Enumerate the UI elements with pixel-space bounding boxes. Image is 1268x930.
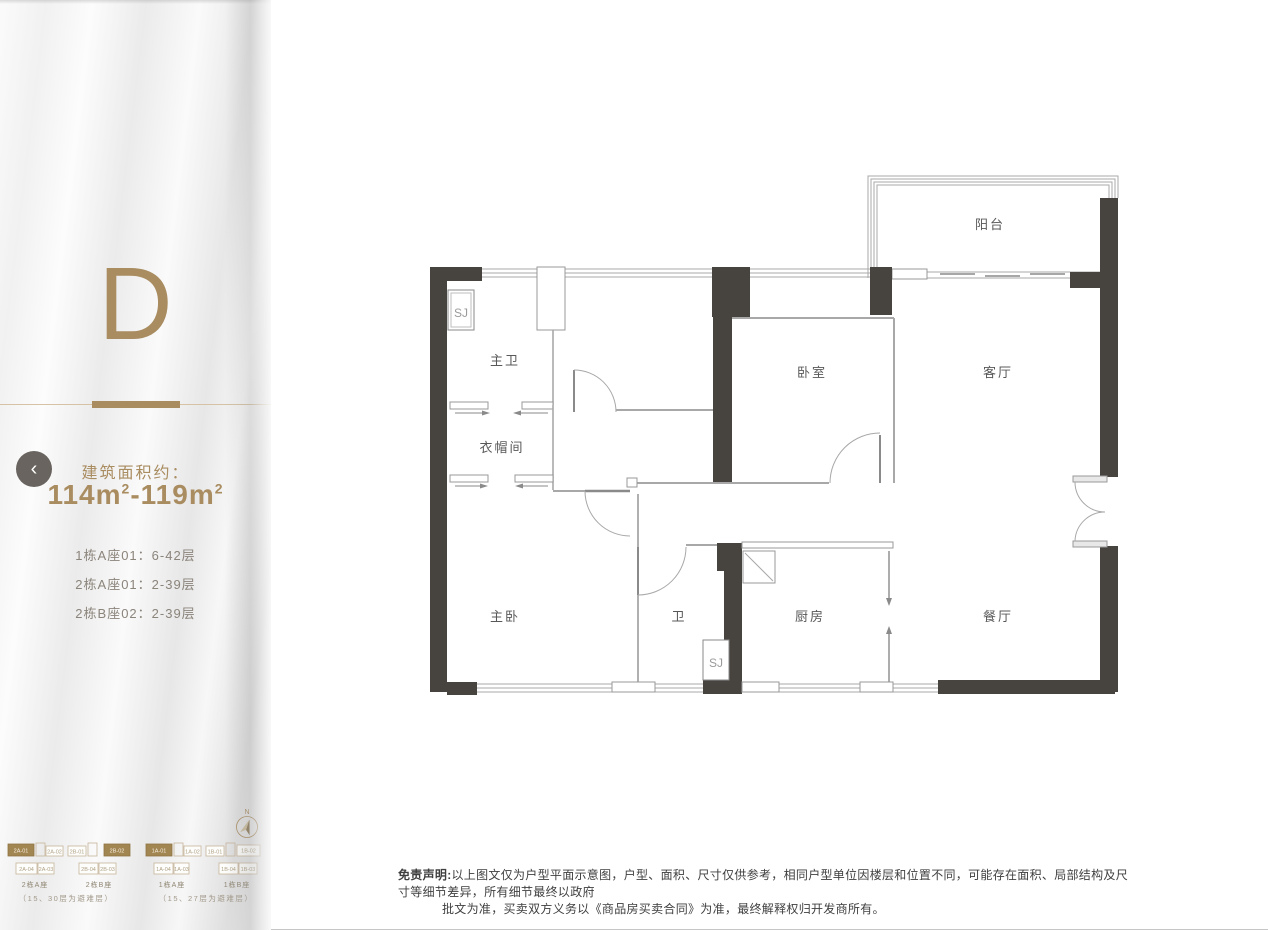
disclaimer: 免责声明:以上图文仅为户型平面示意图，户型、面积、尺寸仅供参考，相同户型单位因楼… — [398, 867, 1134, 918]
shaft-sj-bottom: SJ — [703, 640, 729, 680]
master-bath-walls — [450, 330, 553, 416]
shaft-label: SJ — [454, 306, 468, 320]
unit-letter: D — [0, 252, 271, 355]
building-2A-name: 2栋A座 — [22, 880, 49, 889]
floor-line-3: 2栋B座02：2-39层 — [0, 603, 271, 622]
building-1-refuge-note: （15、27层为避难层） — [159, 893, 254, 903]
floor-plan: SJ SJ — [425, 165, 1125, 705]
shaft-label: SJ — [709, 656, 723, 670]
floor-line-1: 1栋A座01：6-42层 — [0, 545, 271, 564]
disclaimer-prefix: 免责声明: — [398, 868, 452, 882]
unit-1B-04-label: 1B-04 — [221, 867, 236, 873]
unit-1A-02-label: 1A-02 — [185, 850, 200, 856]
building-group-2: 2A-01 2A-02 2B-01 2B-02 2A-04 2A-03 2B-0… — [8, 843, 130, 903]
room-label-bedroom: 卧室 — [797, 365, 827, 380]
building-group-1: 1A-01 1A-02 1B-01 1B-02 1A-04 1A-03 1B-0… — [146, 843, 260, 903]
floor-list: 1栋A座01：6-42层 2栋A座01：2-39层 2栋B座02：2-39层 — [0, 545, 271, 632]
unit-2A-03-label: 2A-03 — [39, 867, 54, 873]
building-2B-name: 2栋B座 — [86, 880, 113, 889]
unit-1A-03-label: 1A-03 — [174, 867, 189, 873]
corridor-door — [574, 370, 713, 412]
building-key-plan: N 2A-01 2A-02 2B-01 — [0, 803, 271, 915]
compass-icon: N — [237, 809, 258, 838]
room-label-kitchen: 厨房 — [795, 609, 825, 624]
building-1A-name: 1栋A座 — [159, 880, 186, 889]
unit-1A-04-label: 1A-04 — [156, 867, 171, 873]
unit-1B-02[interactable] — [237, 845, 260, 856]
disclaimer-text-1: 以上图文仅为户型平面示意图，户型、面积、尺寸仅供参考，相同户型单位因楼层和位置不… — [398, 868, 1128, 899]
room-label-master-bath: 主卫 — [490, 353, 520, 368]
unit-2A-01-label: 2A-01 — [14, 849, 29, 855]
room-label-bath: 卫 — [671, 609, 686, 624]
core-shape — [226, 843, 235, 856]
unit-2B-02-label: 2B-02 — [110, 849, 125, 855]
bedroom-walls — [732, 318, 894, 483]
page: D 建筑面积约： 114m2-119m2 1栋A座01：6-42层 2栋A座01… — [0, 0, 1268, 930]
compass-n-label: N — [244, 809, 249, 816]
disclaimer-line-2: 批文为准，买卖双方义务以《商品房买卖合同》为准，最终解释权归开发商所有。 — [442, 901, 1134, 918]
room-label-dining-room: 餐厅 — [983, 609, 1013, 624]
disclaimer-line-1: 免责声明:以上图文仅为户型平面示意图，户型、面积、尺寸仅供参考，相同户型单位因楼… — [398, 867, 1134, 901]
building-2-refuge-note: （15、30层为避难层） — [19, 893, 114, 903]
column-outline — [537, 267, 565, 330]
room-label-living-room: 客厅 — [983, 365, 1013, 380]
divider-thick-bar — [92, 401, 180, 408]
chevron-left-icon: ‹ — [31, 458, 38, 481]
unit-2A-02-label: 2A-02 — [47, 850, 62, 856]
floor-line-2: 2栋A座01：2-39层 — [0, 574, 271, 593]
core-shape — [36, 843, 45, 856]
room-label-master-bedroom: 主卧 — [490, 609, 520, 624]
hall-walls — [553, 478, 732, 536]
unit-1B-03-label: 1B-03 — [241, 867, 256, 873]
unit-1B-01-label: 1B-01 — [208, 850, 223, 856]
unit-2B-01-label: 2B-01 — [70, 850, 85, 856]
unit-2B-03-label: 2B-03 — [100, 867, 115, 873]
divider — [0, 400, 271, 409]
unit-2A-04-label: 2A-04 — [19, 867, 34, 873]
unit-1A-01-label: 1A-01 — [152, 849, 167, 855]
shaft-sj-top: SJ — [448, 290, 474, 330]
unit-1B-02-label: 1B-02 — [241, 849, 256, 855]
unit-1B-03[interactable] — [239, 863, 257, 874]
core-shape — [88, 843, 97, 856]
entry-double-door — [1073, 476, 1107, 547]
balcony-sliding-door — [892, 269, 1100, 279]
building-1B-name: 1栋B座 — [224, 880, 251, 889]
core-shape — [174, 843, 183, 856]
room-label-balcony: 阳台 — [975, 217, 1005, 232]
back-button[interactable]: ‹ — [16, 451, 52, 487]
room-label-cloakroom: 衣帽间 — [479, 440, 524, 455]
unit-2B-04-label: 2B-04 — [81, 867, 96, 873]
